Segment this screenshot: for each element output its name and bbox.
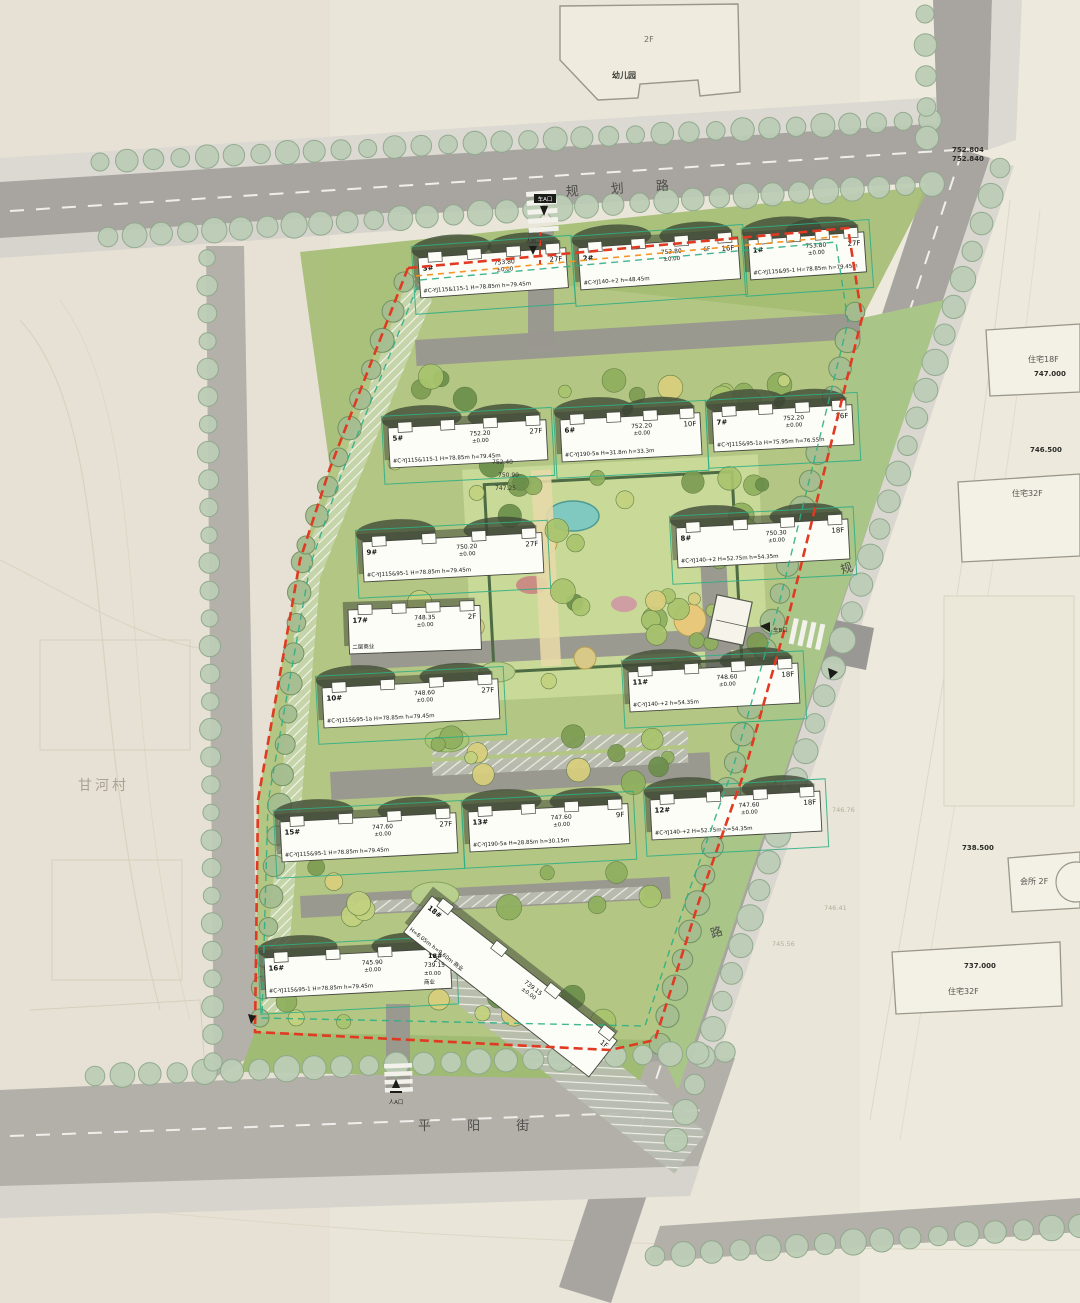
- building-17: 17#2F748.35±0.00 二层商业: [343, 597, 482, 654]
- neighbor-label-3: 会所 2F: [1020, 876, 1049, 886]
- building-datum-label: ±0.00: [364, 967, 382, 974]
- building-elev-label: 747.60: [738, 801, 760, 809]
- building-datum-label: ±0.00: [633, 430, 651, 437]
- neighbor-label-2: 住宅32F: [1012, 488, 1043, 498]
- building-id-label: 10#: [326, 694, 342, 703]
- site-plan-drawing: 3#27F753.80±0.00#C-YJ115&115-1 H=78.85m …: [0, 0, 1080, 1303]
- building-datum-label: ±0.00: [374, 831, 392, 838]
- building-elev-label: 752.20: [631, 422, 653, 430]
- building-floors-label: 18F: [803, 798, 816, 807]
- building-id-label: 2#: [582, 254, 593, 263]
- site-note-3: 747.25: [495, 485, 516, 492]
- building-id-label: 5#: [392, 434, 403, 443]
- round-plaza-2: [574, 647, 596, 669]
- contour-elev-1: 746.76: [832, 806, 855, 814]
- contour-elev-2: 746.41: [824, 904, 847, 912]
- building-datum-label: ±0.00: [768, 537, 786, 544]
- building-datum-label: ±0.00: [719, 681, 737, 688]
- building-datum-label: ±0.00: [472, 438, 490, 445]
- neighbor-label-1: 住宅18F: [1028, 354, 1059, 364]
- building-id-label: 16#: [268, 964, 284, 973]
- spot-elev-6: 737.000: [964, 962, 996, 970]
- spot-elev-2: 752.840: [952, 155, 984, 163]
- spot-elev-5: 738.500: [962, 844, 994, 852]
- building-id-label: 7#: [716, 418, 727, 427]
- building-floors-label: 18F: [781, 670, 794, 679]
- building-id-label: 1#: [752, 246, 763, 255]
- building-floors-label: 27F: [439, 820, 452, 829]
- building-id-label: 17#: [352, 616, 368, 625]
- bottom-road-label: 平 阳 街: [418, 1119, 545, 1134]
- building-datum-label: ±0.00: [808, 250, 826, 257]
- svg-text:18#: 18#: [428, 952, 443, 960]
- building-id-label: 6#: [564, 426, 575, 435]
- building-floors-label: 2F: [468, 613, 477, 621]
- neighbor-32f-footprint: [958, 474, 1080, 562]
- spot-elev-1: 752.804: [952, 146, 984, 154]
- entrance-vehicle-a-label: 车A口: [538, 195, 553, 203]
- site-note-2: 750.90: [498, 472, 519, 479]
- svg-text:商业: 商业: [424, 978, 436, 986]
- building-elev-label: 747.60: [372, 823, 394, 831]
- village-label: 甘河村: [78, 778, 129, 794]
- neighbor-32f-south-footprint: [892, 942, 1062, 1014]
- building-elev-label: 750.30: [766, 529, 788, 537]
- building-elev-label: 747.60: [551, 814, 573, 822]
- building-elev-label: 748.60: [716, 673, 738, 681]
- building-id-label: 9#: [366, 548, 377, 557]
- entrance-ped-a-label: 人A口: [389, 1099, 404, 1106]
- building-elev-label: 748.35: [414, 614, 435, 622]
- building-elev-label: 752.20: [469, 430, 491, 438]
- building-floors-label: 27F: [481, 686, 494, 695]
- neighbor-label-4: 住宅32F: [948, 986, 979, 996]
- building-id-label: 11#: [632, 678, 648, 687]
- spot-elev-4: 746.500: [1030, 446, 1062, 454]
- building-floors-label: 18F: [831, 526, 844, 535]
- building-floors-label: 10F: [683, 420, 696, 429]
- site-plan-canvas: 3#27F753.80±0.00#C-YJ115&115-1 H=78.85m …: [0, 0, 1080, 1303]
- svg-text:±0.00: ±0.00: [424, 971, 441, 977]
- building-elev-label: 752.20: [783, 414, 805, 422]
- contour-elev-3: 745.56: [772, 940, 795, 948]
- right-dotted-plot: [944, 596, 1074, 806]
- building-floors-label: 9F: [616, 811, 625, 819]
- building-datum-label: ±0.00: [417, 622, 435, 629]
- svg-text:739.15: 739.15: [424, 962, 445, 969]
- spot-elev-3: 747.000: [1034, 370, 1066, 378]
- entrance-ped-b-label: 人B口: [526, 238, 541, 245]
- building-elev-label: 753.80: [805, 242, 827, 250]
- building-elev-label: 745.90: [362, 959, 384, 967]
- building-id-label: 12#: [654, 806, 670, 815]
- building-id-label: 8#: [680, 534, 691, 543]
- building-elev-label: 750.20: [456, 543, 478, 551]
- building-datum-label: ±0.00: [416, 697, 434, 704]
- building-datum-label: ±0.00: [553, 822, 571, 829]
- northeast-road: [933, 0, 992, 150]
- kindergarten-label: 幼儿园: [612, 70, 636, 80]
- building-floors-label: 27F: [529, 427, 542, 436]
- site-note-1: 752.40: [492, 459, 513, 466]
- entrance-vehicle-b-label: 车B口: [773, 626, 788, 634]
- building-datum-label: ±0.00: [741, 809, 759, 816]
- building-datum-label: ±0.00: [459, 551, 477, 558]
- kindergarten-floors: 2F: [644, 35, 654, 44]
- building-id-label: 15#: [284, 828, 300, 837]
- building-floors-label: 27F: [525, 540, 538, 549]
- flower-bed-2: [611, 596, 637, 612]
- building-id-label: 13#: [472, 818, 488, 827]
- building-elev-label: 748.60: [414, 689, 436, 697]
- building-datum-label: ±0.00: [785, 422, 803, 429]
